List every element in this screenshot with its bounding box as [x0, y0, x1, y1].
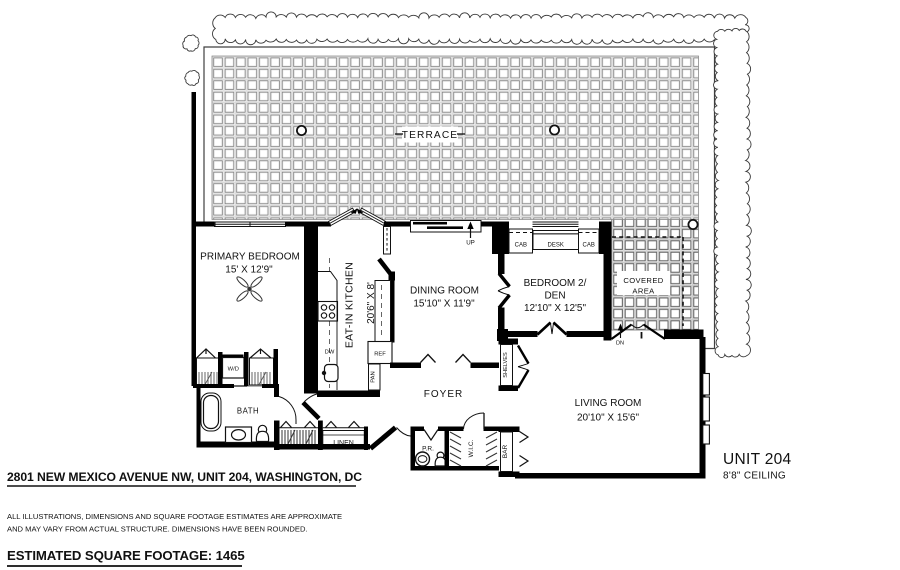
svg-text:DINING ROOM: DINING ROOM	[410, 286, 479, 297]
svg-text:15'10" X 11'9": 15'10" X 11'9"	[413, 299, 475, 310]
svg-text:BAR: BAR	[502, 445, 509, 459]
svg-text:BATH: BATH	[237, 407, 259, 416]
svg-text:DN: DN	[616, 341, 624, 347]
svg-text:DEN: DEN	[544, 291, 565, 302]
svg-text:ALL ILLUSTRATIONS, DIMENSIONS: ALL ILLUSTRATIONS, DIMENSIONS AND SQUARE…	[7, 512, 342, 521]
svg-text:PRIMARY BEDROOM: PRIMARY BEDROOM	[200, 252, 300, 263]
svg-text:UNIT 204: UNIT 204	[723, 451, 792, 468]
svg-text:W/D: W/D	[228, 367, 239, 373]
svg-text:EAT-IN KITCHEN: EAT-IN KITCHEN	[344, 262, 356, 348]
svg-text:CAB: CAB	[515, 243, 527, 249]
svg-text:ESTIMATED SQUARE FOOTAGE: 1465: ESTIMATED SQUARE FOOTAGE: 1465	[7, 548, 245, 563]
svg-text:CAB: CAB	[583, 243, 595, 249]
svg-text:COVERED: COVERED	[623, 276, 663, 285]
svg-text:2801 NEW MEXICO AVENUE NW, UNI: 2801 NEW MEXICO AVENUE NW, UNIT 204, WAS…	[7, 470, 362, 484]
svg-text:12'10" X 12'5": 12'10" X 12'5"	[524, 303, 587, 314]
svg-text:AND MAY VARY FROM ACTUAL STRUC: AND MAY VARY FROM ACTUAL STRUCTURE. DIME…	[7, 525, 308, 534]
svg-text:AREA: AREA	[632, 287, 655, 296]
svg-text:DESK: DESK	[548, 243, 564, 249]
svg-text:SHELVES: SHELVES	[503, 352, 509, 378]
svg-text:REF: REF	[374, 352, 386, 358]
svg-text:BEDROOM 2/: BEDROOM 2/	[524, 278, 587, 289]
svg-text:DW: DW	[325, 350, 335, 356]
svg-text:20'10" X 15'6": 20'10" X 15'6"	[577, 413, 640, 424]
svg-text:W.I.C.: W.I.C.	[468, 439, 475, 457]
svg-text:FOYER: FOYER	[424, 389, 463, 400]
svg-text:8'8" CEILING: 8'8" CEILING	[723, 471, 786, 482]
svg-text:TERRACE: TERRACE	[402, 130, 458, 141]
svg-text:PAN: PAN	[371, 371, 377, 383]
svg-text:15' X 12'9": 15' X 12'9"	[225, 265, 273, 276]
svg-text:LIVING ROOM: LIVING ROOM	[575, 398, 642, 409]
svg-text:UP: UP	[466, 239, 475, 246]
